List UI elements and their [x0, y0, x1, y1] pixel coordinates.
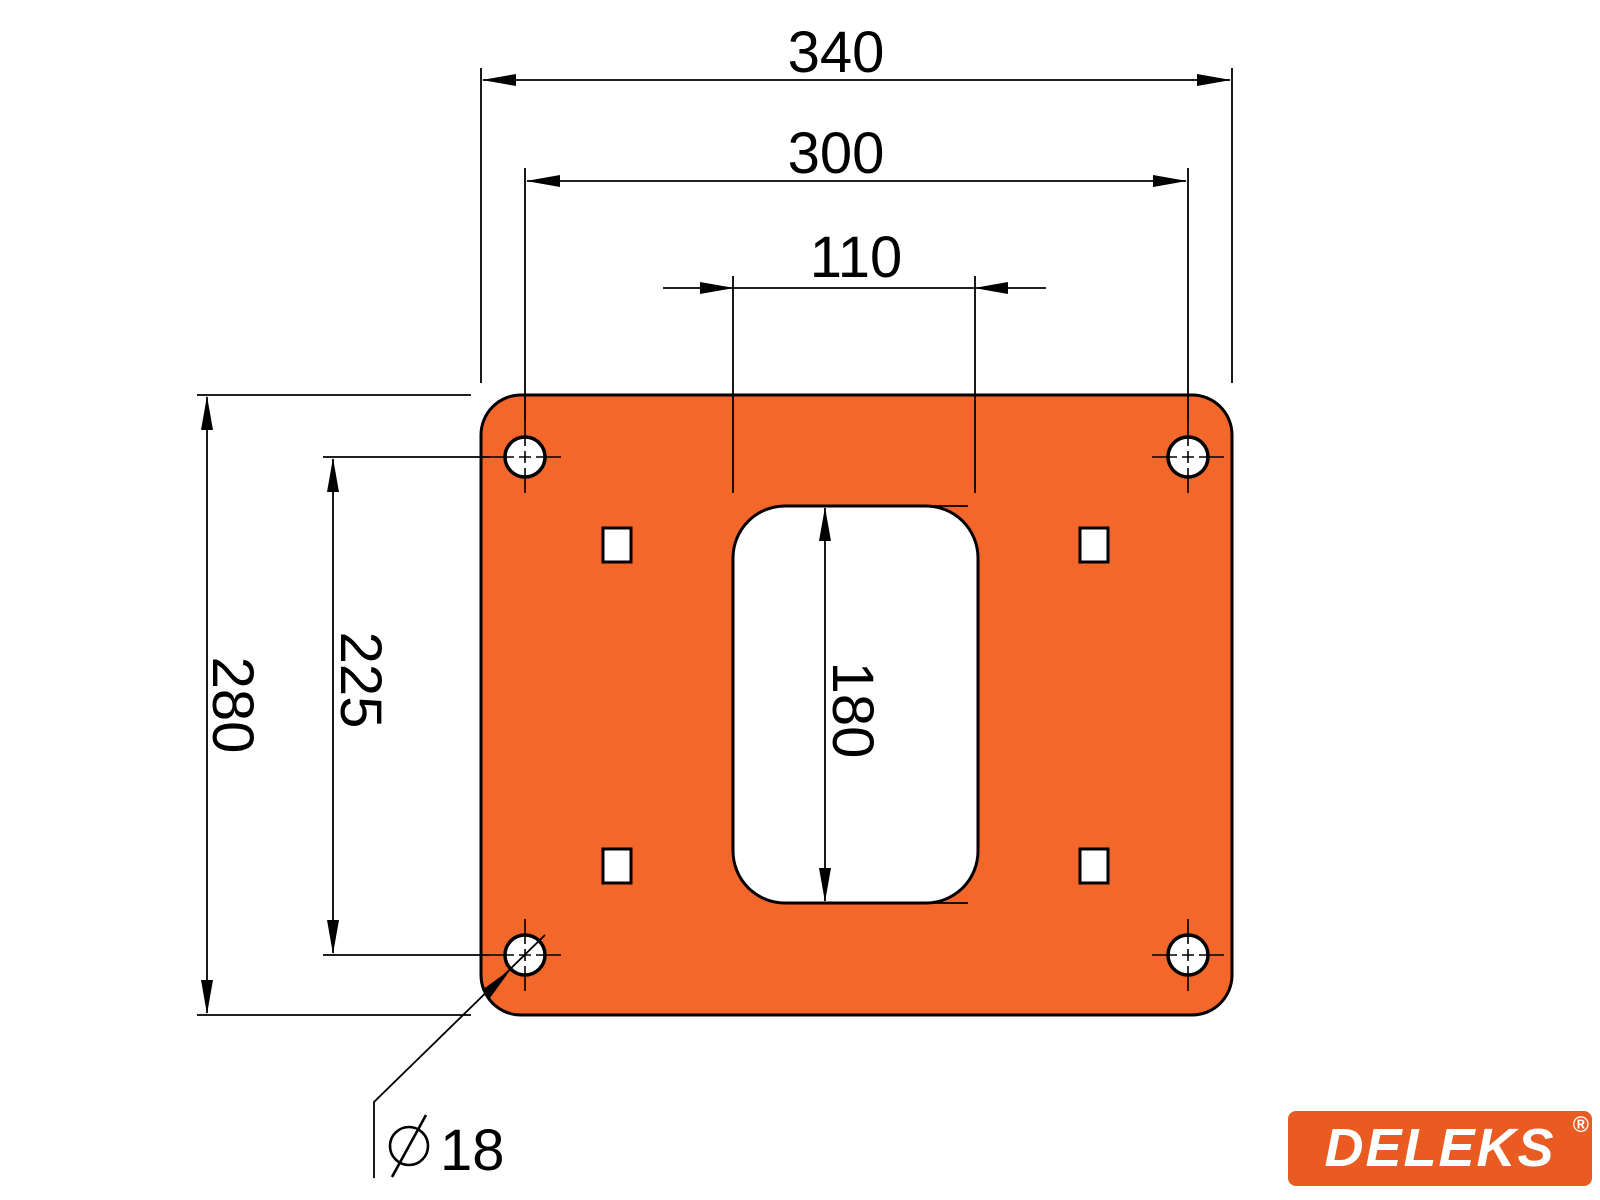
arrowhead-down [201, 980, 213, 1014]
deleks-logo: DELEKS ® [1288, 1111, 1592, 1186]
drawing-svg: 340 300 110 280 225 180 [0, 0, 1600, 1200]
dimension-slot-width: 110 [663, 225, 1046, 294]
arrowhead-right [1197, 74, 1231, 86]
technical-drawing-canvas: 340 300 110 280 225 180 [0, 0, 1600, 1200]
dimension-bolt-spacing-vertical: 225 [327, 458, 393, 954]
arrowhead-right [974, 282, 1008, 294]
dimension-label-300: 300 [788, 121, 885, 186]
dimension-label-340: 340 [788, 20, 885, 85]
square-cutout-top-right [1080, 528, 1108, 562]
square-cutout-bottom-left [603, 849, 631, 883]
square-cutout-bottom-right [1080, 849, 1108, 883]
dimension-overall-width: 340 [482, 20, 1231, 86]
dimension-bolt-spacing-horizontal: 300 [526, 121, 1187, 187]
arrowhead-left [700, 282, 734, 294]
arrowhead-left [482, 74, 516, 86]
arrowhead-up [201, 396, 213, 430]
square-cutout-top-left [603, 528, 631, 562]
diameter-symbol-icon [390, 1115, 428, 1177]
dimension-label-180: 180 [820, 662, 885, 759]
arrowhead-up [327, 458, 339, 492]
deleks-logo-text: DELEKS [1324, 1121, 1555, 1175]
dimension-label-hole-diameter: 18 [440, 1118, 505, 1183]
dimension-overall-height: 280 [200, 396, 265, 1014]
arrowhead-left [526, 175, 560, 187]
arrowhead-down [327, 920, 339, 954]
registered-trademark-icon: ® [1573, 1112, 1589, 1138]
arrowhead-right [1153, 175, 1187, 187]
dimension-label-225: 225 [328, 632, 393, 729]
dimension-label-280: 280 [200, 657, 265, 754]
dimension-label-110: 110 [810, 225, 902, 290]
